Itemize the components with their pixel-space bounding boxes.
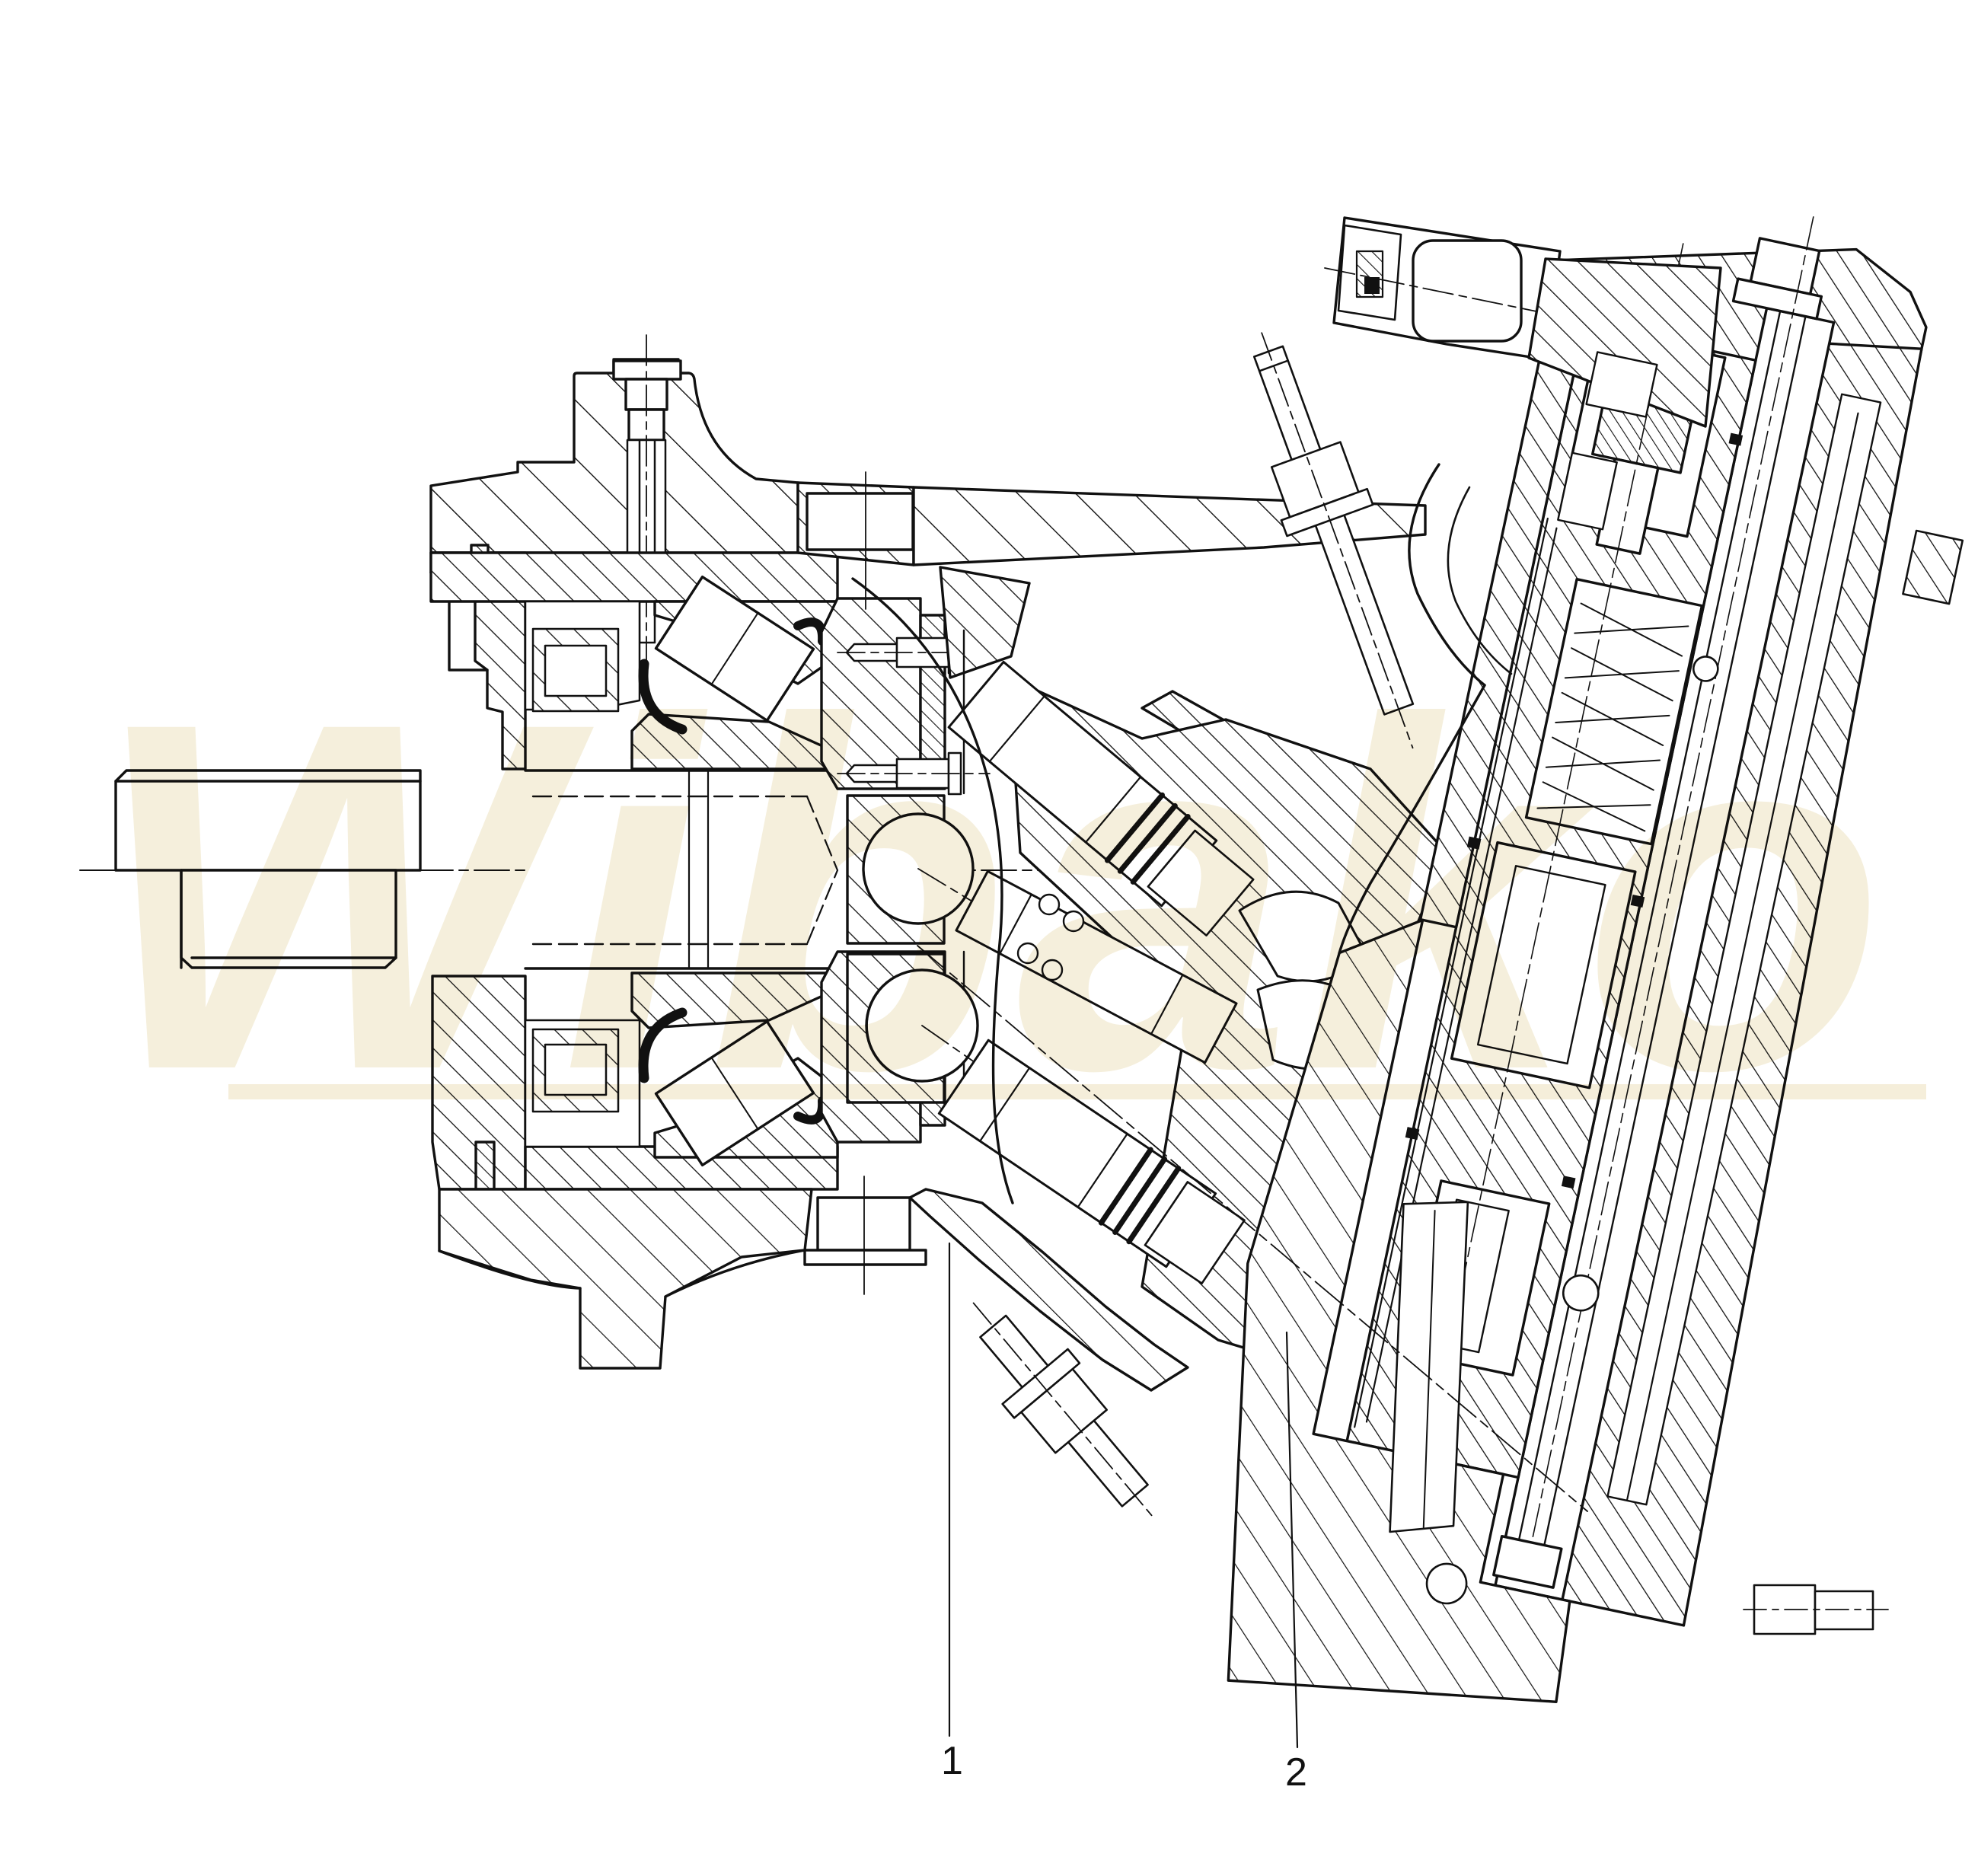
svg-text:1: 1	[941, 1739, 963, 1783]
svg-text:2: 2	[1285, 1750, 1307, 1795]
